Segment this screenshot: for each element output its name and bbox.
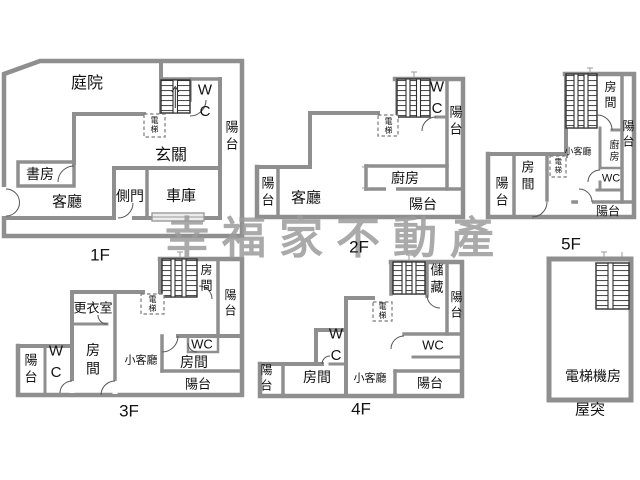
room-label-dressing-3f: 更衣室 [73, 302, 112, 315]
room-label-bedroom-right-3f: 房間 [180, 355, 208, 369]
floor-label-4f: 4F [351, 401, 371, 418]
room-label-side-door-1f: 側門 [116, 189, 144, 203]
room-label-bedroom-left-5f: 房間 [521, 160, 534, 194]
room-label-bedroom-4f: 房間 [303, 370, 331, 384]
room-label-small-living-4f: 小客廳 [354, 374, 387, 385]
room-label-balcony-bottom-4f: 陽台 [417, 377, 443, 390]
room-label-bedroom-top-3f: 房間 [200, 263, 212, 294]
floor-label-5f: 5F [561, 236, 581, 253]
room-label-wc-2f: WC [430, 79, 445, 122]
room-label-wc-right-3f: WC [191, 338, 213, 351]
floor-label-1f: 1F [90, 247, 110, 264]
room-label-storage-4f: 儲藏 [430, 263, 443, 297]
room-label-wc-1f: WC [198, 82, 213, 125]
room-label-balcony-right-2f: 陽台 [449, 105, 462, 139]
room-label-living-1f: 客廳 [52, 195, 82, 210]
floor-label-roof: 屋突 [575, 403, 605, 418]
room-label-elevator-1f: 電梯 [150, 116, 158, 134]
room-label-wc-5f: WC [602, 174, 620, 185]
room-label-balcony-right-5f: 陽台 [622, 119, 634, 150]
room-label-elevator-2f: 電梯 [384, 117, 392, 135]
room-label-garage-1f: 車庫 [166, 189, 196, 204]
room-label-kitchen-2f: 廚房 [391, 171, 419, 185]
floor-label-2f: 2F [349, 239, 369, 256]
room-label-living-2f: 客廳 [291, 191, 321, 206]
room-label-balcony-left-5f: 陽台 [495, 176, 508, 210]
room-label-small-living-3f: 小客廳 [125, 356, 158, 367]
floorplan-image: 幸福家不動產 庭院 玄關 書房 客廳 側門 車庫 WC 電梯 陽台 1F WC … [0, 0, 640, 480]
room-label-bedroom-top-5f: 房間 [604, 80, 616, 111]
room-label-wc-left-4f: WC [329, 326, 344, 369]
room-label-elevator-4f: 電梯 [378, 302, 386, 320]
room-label-bedroom-left-3f: 房間 [86, 343, 100, 379]
room-label-elevator-3f: 電梯 [148, 295, 156, 313]
room-label-study-1f: 書房 [26, 167, 54, 181]
room-label-balcony-right-4f: 陽台 [450, 290, 462, 321]
room-label-small-living-5f: 小客廳 [564, 148, 591, 157]
room-label-wc-right-4f: WC [422, 339, 444, 352]
room-label-wc-left-3f: WC [49, 343, 64, 386]
room-label-balcony-bottom-2f: 陽台 [409, 197, 437, 211]
room-label-balcony-bottom-5f: 陽台 [596, 205, 620, 217]
room-label-balcony-right-1f: 陽台 [225, 120, 238, 154]
room-label-balcony-bottom-3f: 陽台 [185, 378, 211, 391]
room-label-balcony-right-3f: 陽台 [224, 288, 236, 319]
floor-label-3f: 3F [119, 403, 139, 420]
labels-layer: 庭院 玄關 書房 客廳 側門 車庫 WC 電梯 陽台 1F WC 電梯 陽台 客… [0, 0, 640, 480]
room-label-balcony-left-4f: 陽台 [260, 363, 272, 394]
room-label-entrance-1f: 玄關 [155, 148, 187, 164]
room-label-kitchen-5f: 廚房 [607, 140, 617, 162]
room-label-balcony-left-3f: 陽台 [24, 353, 37, 387]
room-label-courtyard-1f: 庭院 [71, 76, 103, 92]
room-label-elevator-5f: 電梯 [554, 158, 562, 175]
room-label-machine-room-roof: 電梯機房 [565, 369, 621, 383]
room-label-balcony-left-2f: 陽台 [261, 176, 274, 210]
